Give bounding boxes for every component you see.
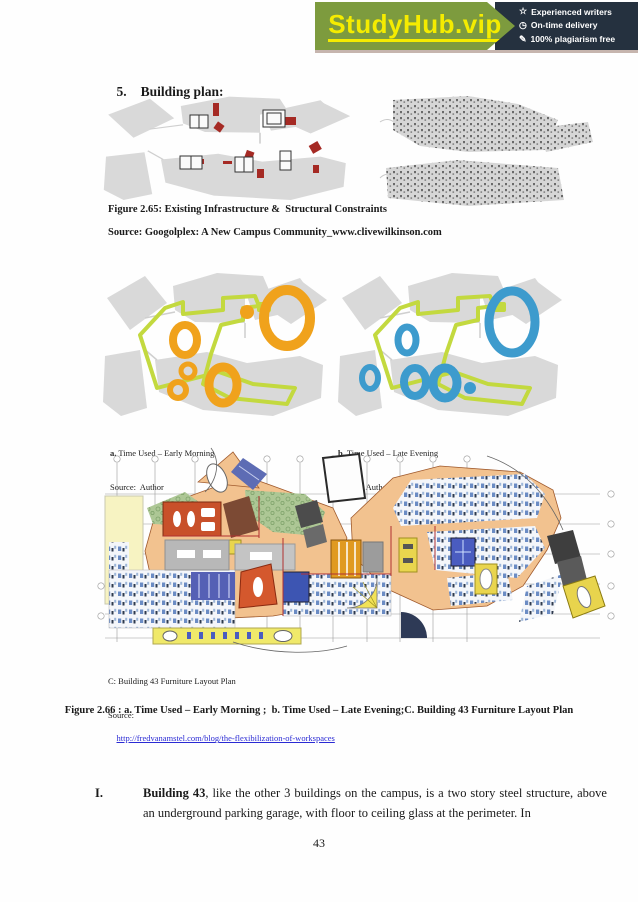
feature-delivery: ◷ On-time delivery: [519, 20, 638, 32]
document-page: ☆ Experienced writers ◷ On-time delivery…: [0, 0, 638, 902]
banner-features: ☆ Experienced writers ◷ On-time delivery…: [495, 2, 638, 50]
source-link[interactable]: http://fredvanamstel.com/blog/the-flexib…: [117, 733, 335, 743]
feature-label: 100% plagiarism free: [531, 34, 616, 45]
figure-265-source: Source: Googolplex: A New Campus Communi…: [108, 227, 442, 238]
studyhub-banner[interactable]: ☆ Experienced writers ◷ On-time delivery…: [315, 2, 638, 50]
time-used-early-morning-diagram: [95, 268, 345, 426]
page-number: 43: [0, 836, 638, 851]
feature-label: On-time delivery: [531, 20, 598, 31]
caption-c-title: C: Building 43 Furniture Layout Plan: [108, 676, 335, 687]
paragraph-bold-lead: Building 43: [143, 786, 205, 800]
banner-brand-area: StudyHub.vip: [315, 2, 515, 50]
existing-infrastructure-diagram: [95, 93, 370, 205]
feature-label: Experienced writers: [531, 7, 612, 18]
time-used-late-evening-diagram: [330, 268, 580, 426]
building-43-furniture-layout-plan: [95, 446, 625, 656]
paragraph-text: Building 43, like the other 3 buildings …: [143, 783, 607, 823]
figure-266-caption: Figure 2.66 : a. Time Used – Early Morni…: [0, 705, 638, 716]
paragraph-rest: , like the other 3 buildings on the camp…: [143, 786, 607, 820]
body-paragraph: I. Building 43, like the other 3 buildin…: [95, 783, 607, 823]
clock-icon: ◷: [519, 20, 527, 32]
banner-bottom-edge: [315, 50, 638, 53]
list-numeral: I.: [95, 783, 143, 823]
plagiarism-icon: ✎: [519, 34, 527, 46]
figure-265-caption: Figure 2.65: Existing Infrastructure & S…: [108, 204, 387, 215]
feature-plagiarism: ✎ 100% plagiarism free: [519, 34, 638, 46]
star-icon: ☆: [519, 6, 527, 18]
studyhub-logo[interactable]: StudyHub.vip: [328, 11, 502, 42]
floor-plan-scans: [378, 92, 636, 210]
feature-writers: ☆ Experienced writers: [519, 6, 638, 18]
